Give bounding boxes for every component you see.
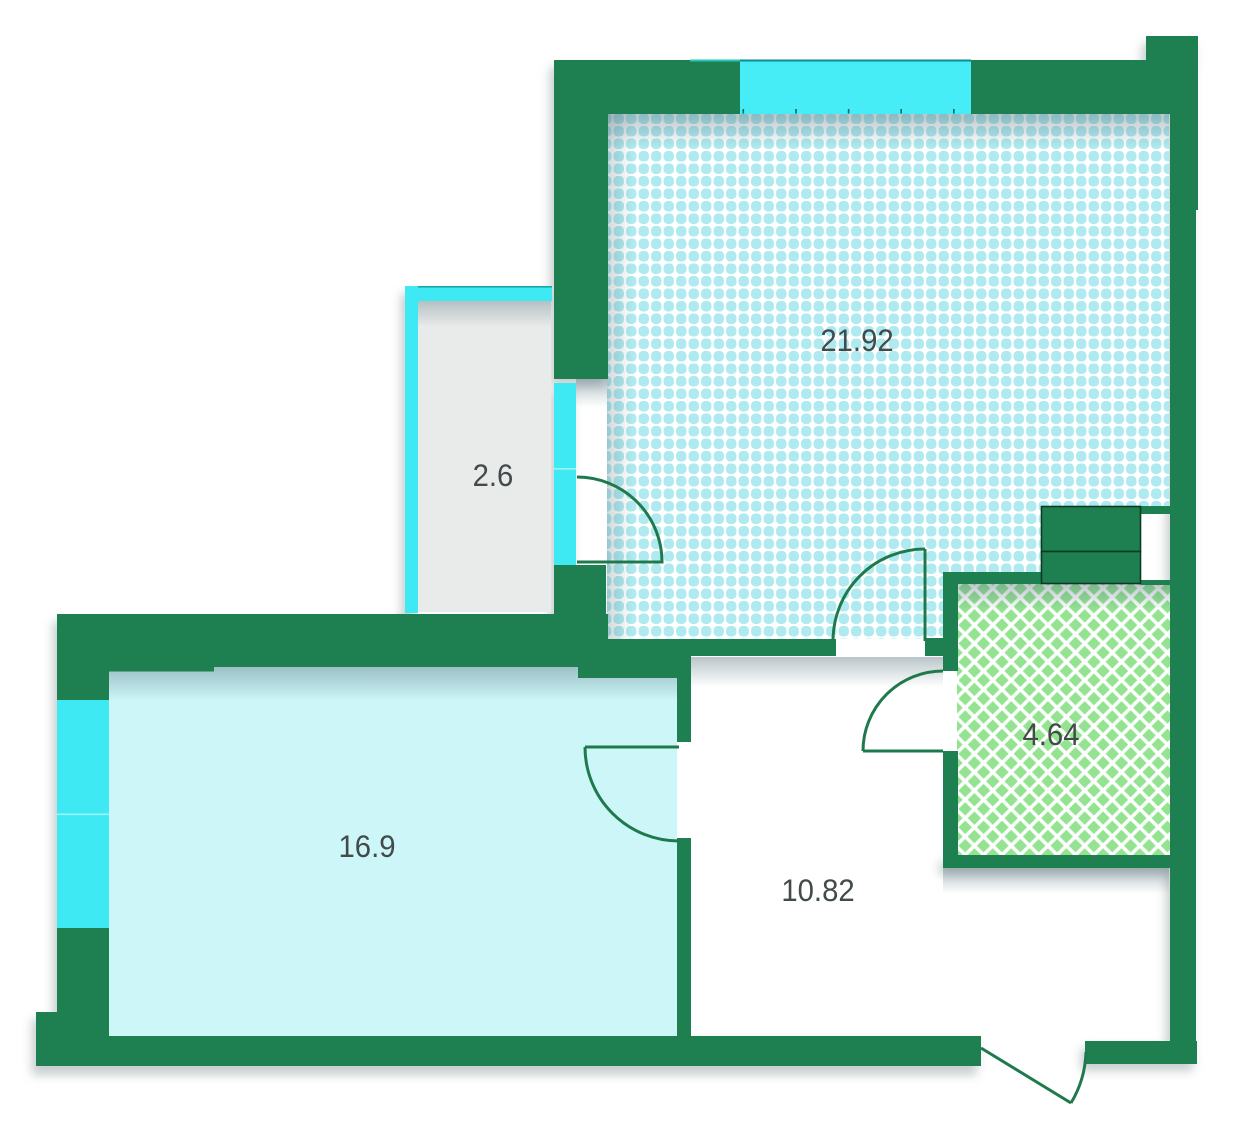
svg-text:21.92: 21.92 <box>820 323 893 358</box>
svg-text:2.6: 2.6 <box>473 458 514 493</box>
svg-text:16.9: 16.9 <box>338 829 395 864</box>
svg-text:4.64: 4.64 <box>1022 717 1079 752</box>
svg-text:10.82: 10.82 <box>781 873 854 908</box>
